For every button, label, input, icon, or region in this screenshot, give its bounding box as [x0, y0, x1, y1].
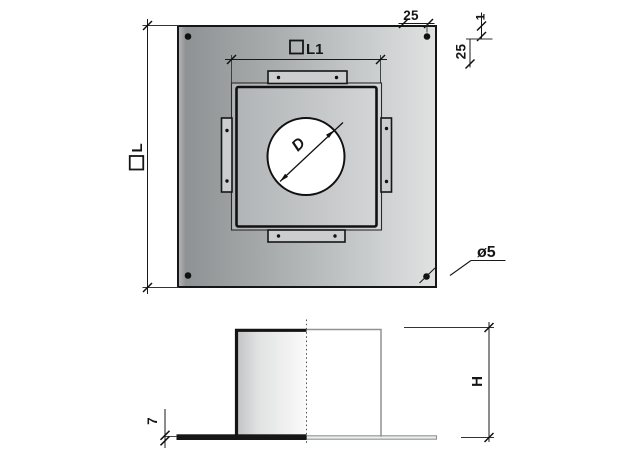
dim-L1-label: L1 [306, 41, 324, 58]
top-view: L1 L D [129, 8, 506, 294]
side-view: 7 H [145, 320, 494, 449]
hole-dia-leader [450, 261, 471, 276]
rivet [225, 179, 228, 182]
rivet [335, 76, 338, 79]
corner-hole-bottom-left [185, 272, 192, 279]
rivet [333, 234, 336, 237]
base-plate-left [177, 434, 307, 440]
square-symbol [130, 156, 144, 170]
dim-7-label: 7 [145, 417, 160, 425]
rivet [277, 76, 280, 79]
dim-25-right-label: 25 [454, 44, 469, 60]
hole-dia-label: ø5 [477, 244, 496, 261]
corner-hole-top-right [424, 33, 431, 40]
dim-H-label-group: H [469, 376, 486, 387]
rivet [385, 180, 388, 183]
dim-1-label-group: 1 [474, 13, 488, 20]
dim-1-label: 1 [474, 13, 488, 20]
technical-drawing: L1 L D [0, 0, 624, 460]
rivet [277, 234, 280, 237]
dim-25-right-label-group: 25 [454, 44, 469, 60]
rivet [225, 129, 228, 132]
rivet [385, 127, 388, 130]
duct-right-fill [307, 330, 382, 437]
dim-7-label-group: 7 [145, 417, 160, 425]
dim-L-label: L [129, 143, 146, 152]
dim-H-label: H [469, 376, 486, 387]
dim-L-label-group: L [129, 143, 146, 169]
corner-hole-top-left [185, 33, 192, 40]
drawing-svg: L1 L D [0, 0, 624, 460]
base-plate-right [307, 436, 437, 439]
duct-left-fill [237, 330, 307, 435]
